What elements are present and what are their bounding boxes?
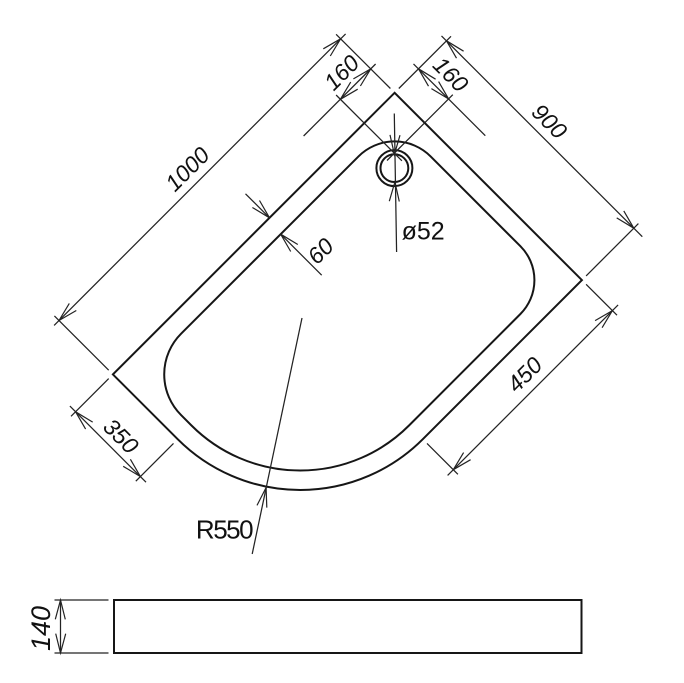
svg-text:ø52: ø52 — [402, 218, 445, 246]
svg-text:140: 140 — [26, 606, 56, 651]
svg-text:R550: R550 — [196, 515, 253, 545]
